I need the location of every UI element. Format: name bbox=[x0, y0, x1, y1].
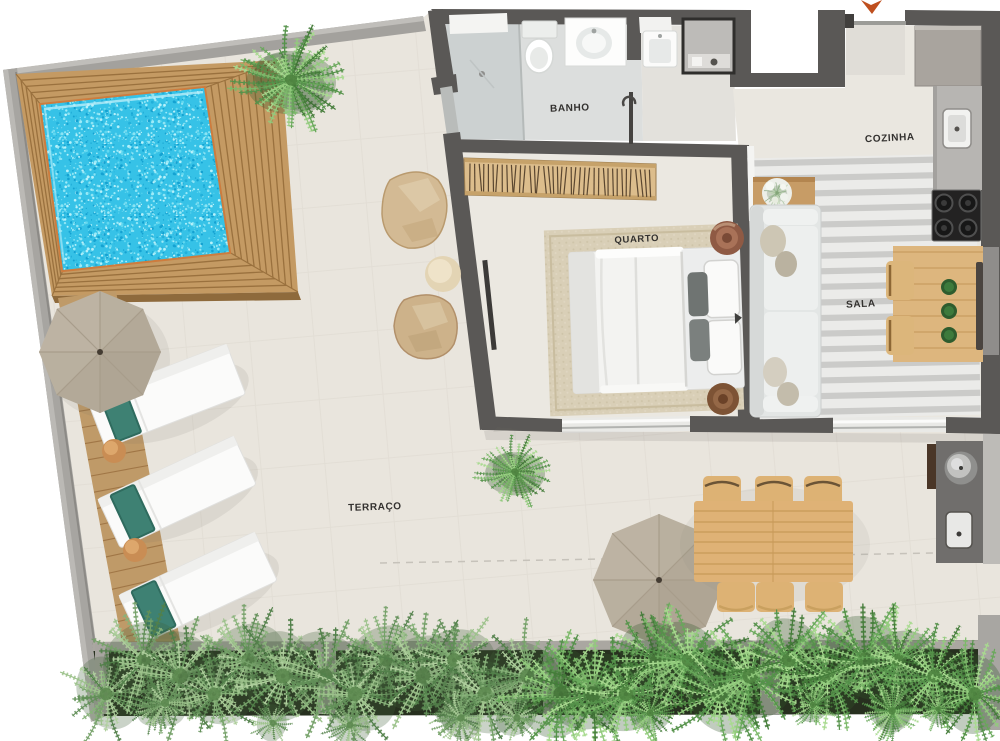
svg-text:BANHO: BANHO bbox=[550, 102, 590, 114]
svg-text:SALA: SALA bbox=[846, 298, 876, 311]
svg-text:TERRAÇO: TERRAÇO bbox=[348, 501, 402, 514]
svg-text:QUARTO: QUARTO bbox=[614, 233, 659, 246]
